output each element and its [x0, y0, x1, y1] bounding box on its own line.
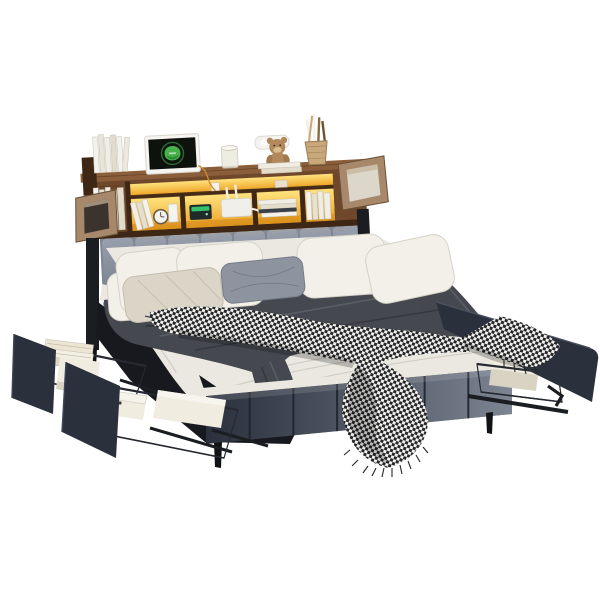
bed-product-illustration: [0, 0, 600, 600]
alarm-clock: [153, 209, 168, 224]
books-under-teddy: [258, 162, 301, 174]
brush-pot: [304, 113, 329, 165]
drawer-front: [62, 362, 120, 458]
shelf-book-stack: [258, 199, 297, 218]
product-image: [0, 0, 600, 600]
bookcase-headboard: [70, 110, 390, 242]
small-photo-frame: [168, 204, 178, 222]
book-stack-top-left: [92, 133, 131, 173]
pillow-gray: [220, 256, 306, 304]
mini-speaker: [189, 204, 212, 220]
glass-door-left: [73, 190, 118, 242]
bed-leg: [486, 412, 493, 434]
glass-door-right: [338, 156, 389, 210]
glass-cup: [221, 145, 238, 168]
